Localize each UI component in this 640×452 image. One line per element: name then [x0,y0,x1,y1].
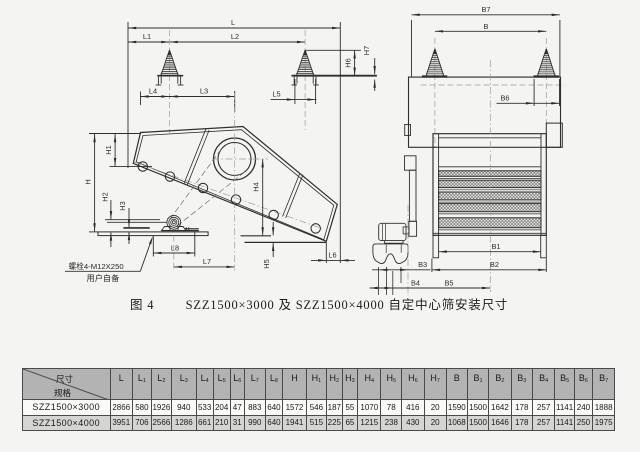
svg-text:螺栓4-M12X250: 螺栓4-M12X250 [69,261,124,271]
svg-text:L3: L3 [200,87,208,96]
svg-text:B2: B2 [490,260,499,269]
svg-text:H7: H7 [362,46,371,55]
svg-text:L8: L8 [171,243,179,252]
svg-text:H4: H4 [252,182,261,191]
svg-text:L: L [231,18,235,27]
svg-text:L6: L6 [328,251,336,260]
svg-text:L1: L1 [143,32,151,41]
svg-text:B: B [484,22,489,31]
svg-text:H: H [84,179,93,184]
svg-text:B1: B1 [491,242,500,251]
svg-text:L4: L4 [149,87,157,96]
svg-text:H2: H2 [101,192,110,201]
svg-text:H6: H6 [344,58,353,67]
svg-text:L2: L2 [231,32,239,41]
svg-text:用户自备: 用户自备 [87,273,120,283]
svg-text:B7: B7 [481,5,490,14]
svg-text:L7: L7 [203,257,211,266]
svg-text:H1: H1 [104,145,113,154]
svg-text:L5: L5 [272,90,280,99]
svg-text:B5: B5 [444,278,453,287]
svg-text:B3: B3 [418,260,427,269]
svg-text:H3: H3 [118,201,127,210]
svg-text:B4: B4 [411,278,420,287]
svg-text:H5: H5 [262,259,271,268]
svg-text:B6: B6 [500,93,509,102]
